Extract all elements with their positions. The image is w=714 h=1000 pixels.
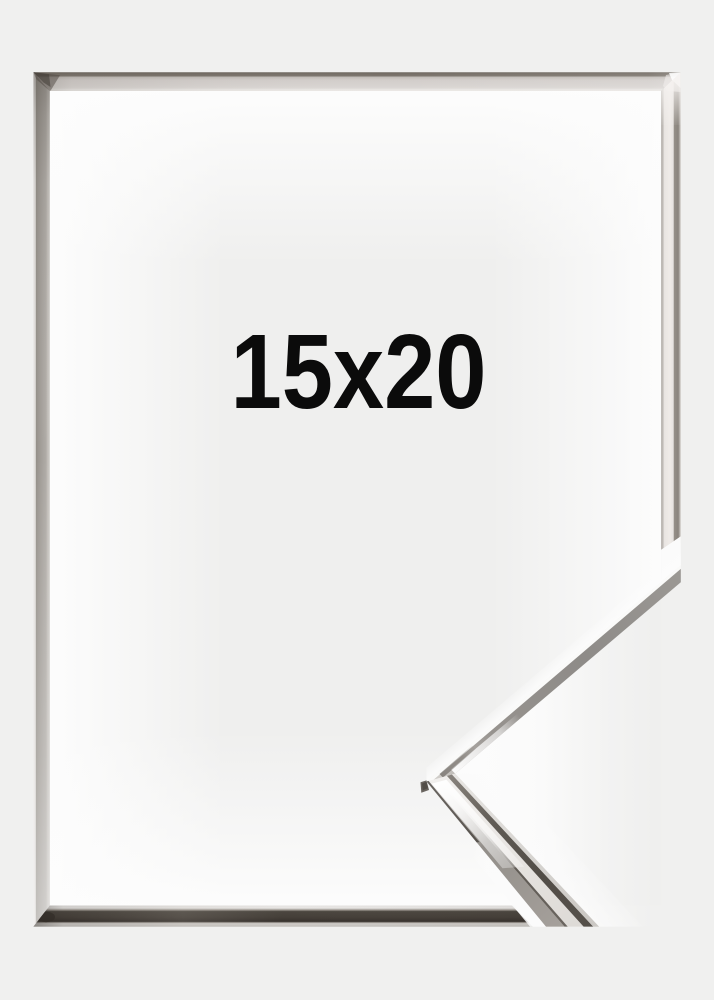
svg-text:15x20: 15x20 — [231, 313, 487, 432]
